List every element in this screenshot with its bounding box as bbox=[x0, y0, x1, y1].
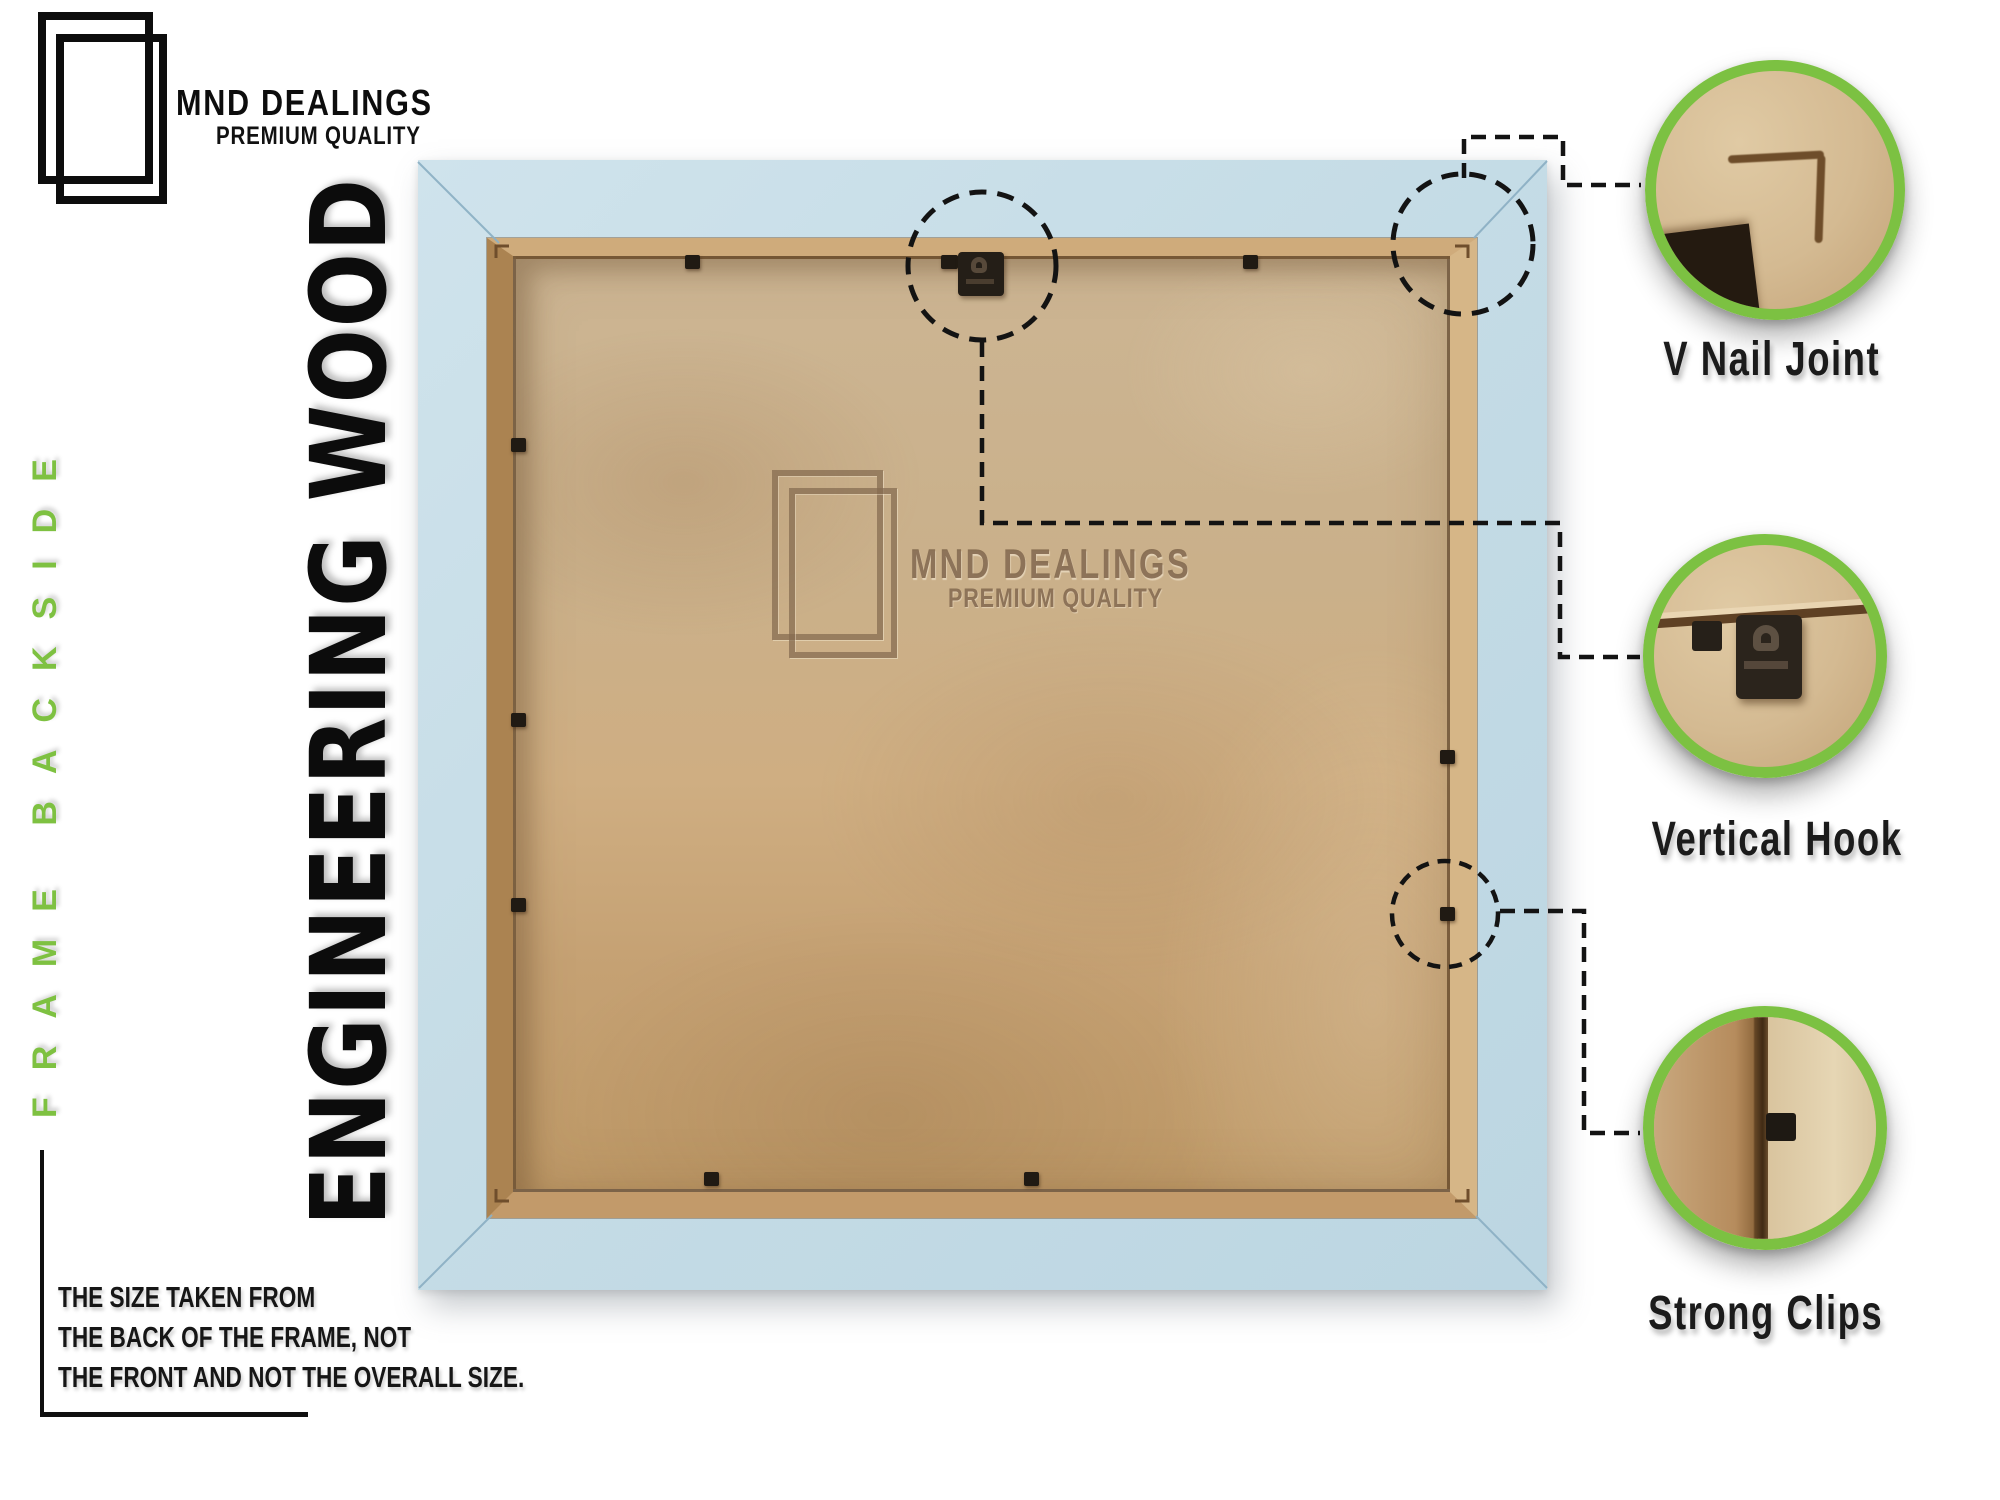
frame-backside-infographic: MND DEALINGS PREMIUM QUALITY FRAME BACKS… bbox=[0, 0, 2000, 1500]
metal-clip bbox=[1024, 1172, 1039, 1186]
watermark-tagline: PREMIUM QUALITY bbox=[948, 583, 1217, 614]
metal-clip-zoom bbox=[1766, 1113, 1796, 1141]
hook-ring bbox=[971, 257, 987, 273]
wood-panel bbox=[1654, 1017, 1758, 1239]
callout-vertical-hook bbox=[1643, 534, 1887, 778]
note-bracket-vertical bbox=[40, 1150, 44, 1416]
metal-clip bbox=[941, 255, 958, 269]
metal-clip bbox=[511, 713, 526, 727]
brand-logo-icon-overlap bbox=[56, 34, 167, 204]
metal-clip bbox=[704, 1172, 719, 1186]
hook-slot bbox=[966, 279, 994, 284]
side-label-frame-backside: FRAME BACKSIDE bbox=[26, 358, 70, 1118]
v-nail-groove bbox=[1814, 155, 1825, 243]
watermark-name: MND DEALINGS bbox=[910, 540, 1270, 588]
metal-clip bbox=[1243, 255, 1258, 269]
frame-back-panel-mdf bbox=[513, 256, 1450, 1192]
metal-clip bbox=[511, 438, 526, 452]
callout-v-nail-joint bbox=[1645, 60, 1905, 320]
callout-strong-clips bbox=[1643, 1006, 1887, 1250]
hanging-hook-zoom bbox=[1736, 615, 1802, 699]
corner-shadow bbox=[1645, 223, 1762, 320]
label-strong-clips: Strong Clips bbox=[1606, 1286, 1926, 1341]
hook-ring bbox=[1753, 625, 1779, 651]
label-vertical-hook: Vertical Hook bbox=[1612, 812, 1932, 867]
brand-tagline: PREMIUM QUALITY bbox=[216, 122, 466, 151]
note-bracket-horizontal bbox=[40, 1412, 308, 1417]
brand-name: MND DEALINGS bbox=[176, 82, 478, 124]
hook-slot bbox=[1744, 661, 1788, 669]
material-label-engineering-wood: ENGINEERING WOOD bbox=[288, 270, 410, 1226]
metal-clip bbox=[1440, 750, 1455, 764]
metal-clip bbox=[685, 255, 700, 269]
metal-clip bbox=[1692, 621, 1722, 651]
size-note-line: THE BACK OF THE FRAME, NOT bbox=[58, 1318, 656, 1358]
hanging-hook bbox=[958, 252, 1004, 296]
watermark-logo-icon-overlap bbox=[789, 488, 897, 658]
size-note: THE SIZE TAKEN FROM THE BACK OF THE FRAM… bbox=[58, 1278, 656, 1398]
metal-clip bbox=[511, 898, 526, 912]
v-nail-groove bbox=[1728, 150, 1824, 163]
metal-clip bbox=[1440, 907, 1455, 921]
size-note-line: THE FRONT AND NOT THE OVERALL SIZE. bbox=[58, 1358, 656, 1398]
label-v-nail-joint: V Nail Joint bbox=[1612, 332, 1932, 387]
